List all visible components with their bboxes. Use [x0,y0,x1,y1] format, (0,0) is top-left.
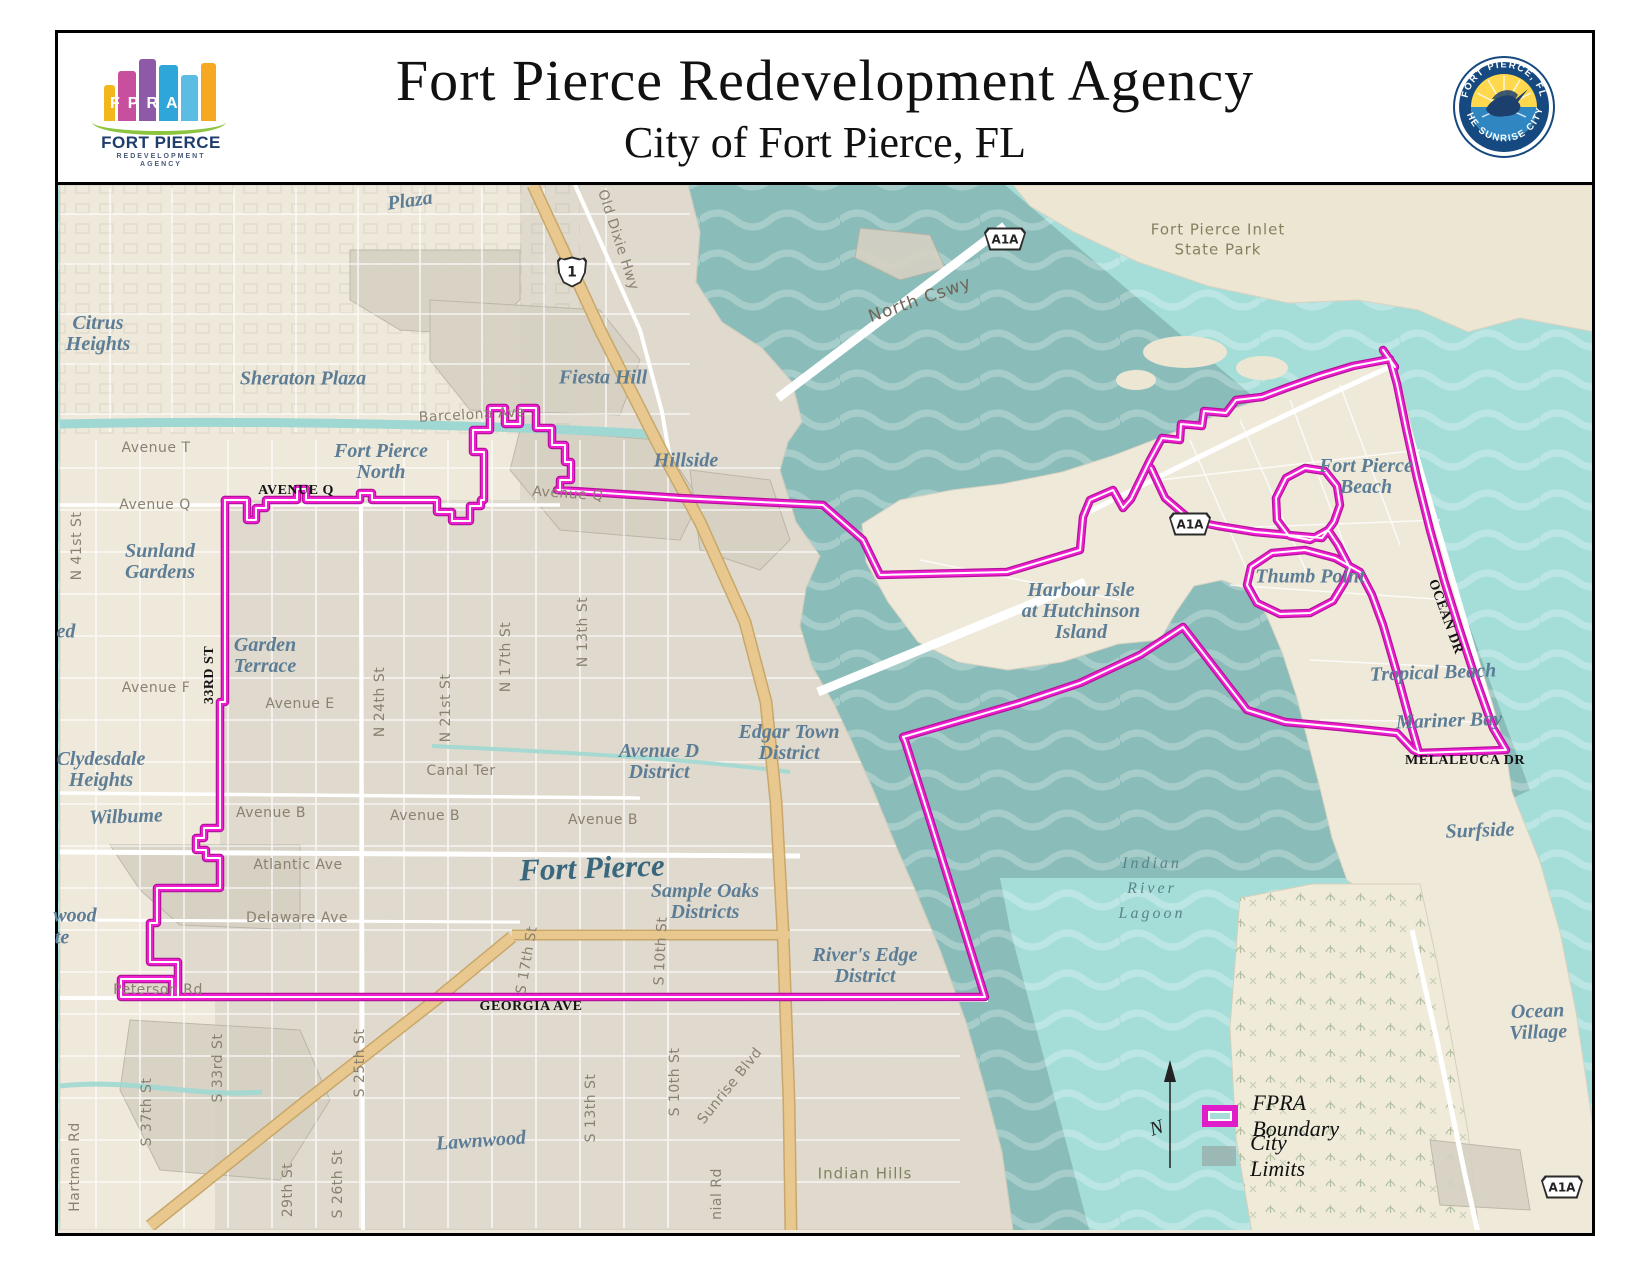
page-subtitle: City of Fort Pierce, FL [58,117,1592,168]
page-title: Fort Pierce Redevelopment Agency [58,47,1592,114]
legend-city-limits-swatch [1202,1146,1236,1166]
header: FPRA FORT PIERCE REDEVELOPMENT AGENCY Fo… [55,30,1595,185]
legend-city-limits-label: City Limits [1250,1130,1319,1182]
page: FPRA FORT PIERCE REDEVELOPMENT AGENCY Fo… [0,0,1650,1275]
legend-fpra-boundary-swatch [1202,1105,1238,1127]
map-frame [55,182,1595,1236]
city-seal-icon: FORT PIERCE, FL THE SUNRISE CITY [1452,55,1556,159]
